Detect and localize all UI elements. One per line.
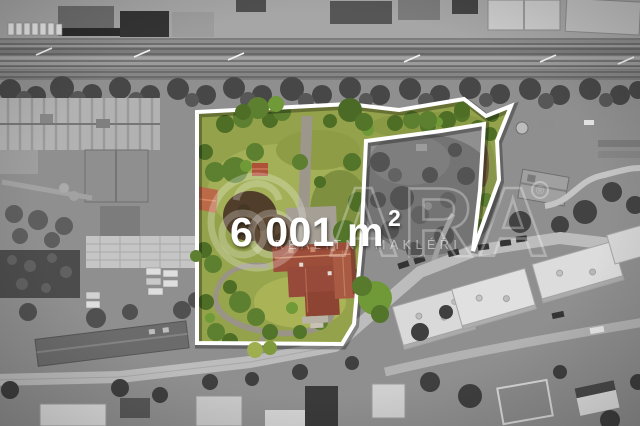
area-label: 6 001 m 2 xyxy=(230,205,401,255)
aerial-photo-canvas: ARA ® REALITNÍ MAKLÉŘI 6 001 m 2 xyxy=(0,0,640,426)
area-value: 6 001 m xyxy=(230,209,384,255)
aerial-photo: ARA ® REALITNÍ MAKLÉŘI 6 001 m 2 xyxy=(0,0,640,426)
area-superscript: 2 xyxy=(388,205,401,231)
svg-text:®: ® xyxy=(536,185,544,197)
